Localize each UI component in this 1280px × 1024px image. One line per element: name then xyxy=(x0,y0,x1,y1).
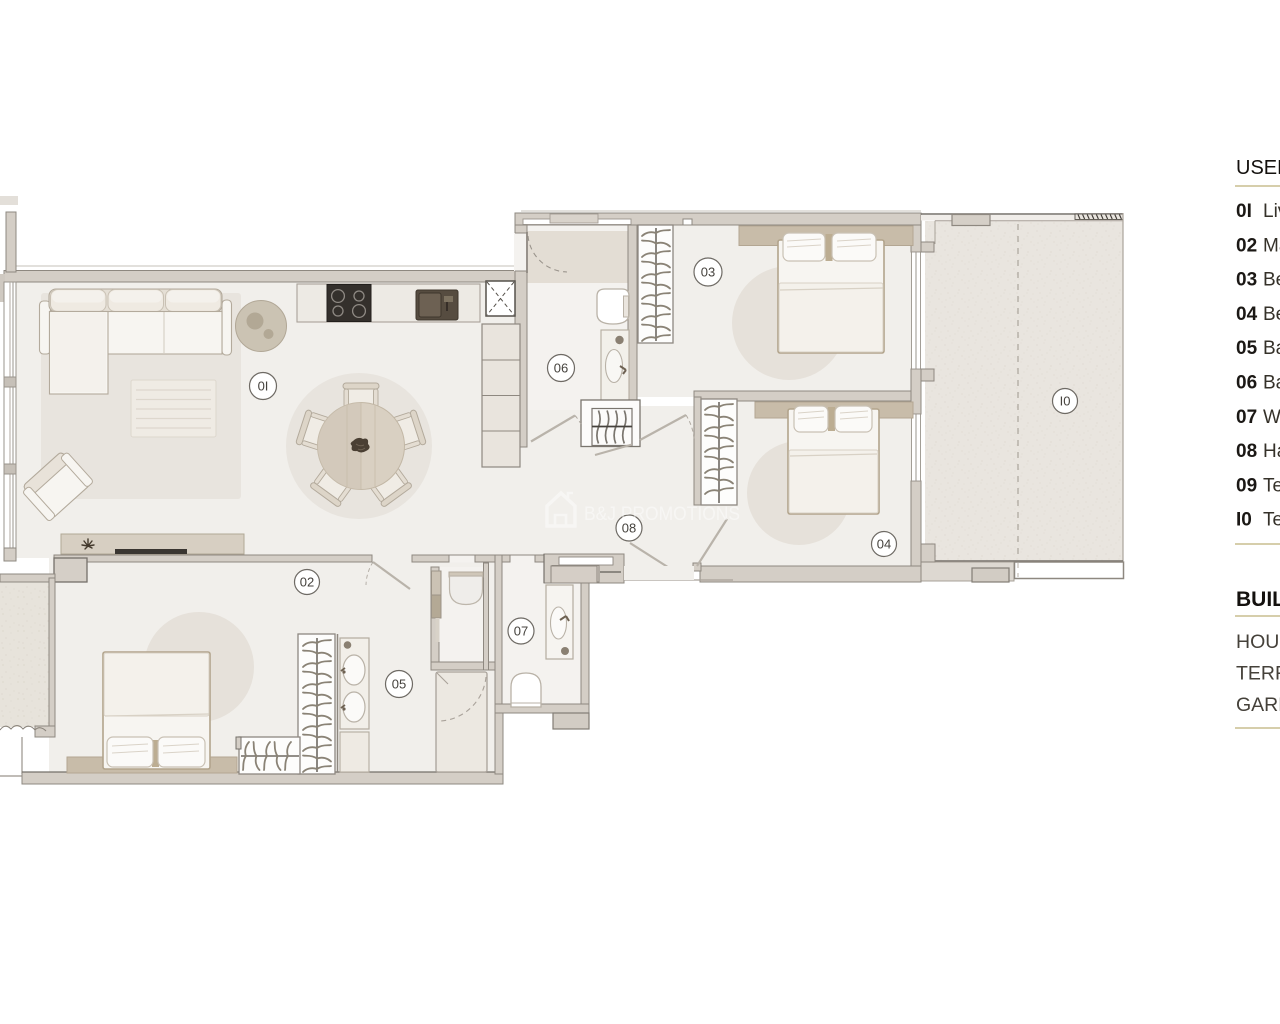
svg-text:06: 06 xyxy=(1236,373,1257,394)
svg-text:09: 09 xyxy=(1236,475,1257,496)
svg-text:03: 03 xyxy=(701,265,715,280)
svg-text:Hall: Hall xyxy=(1263,441,1280,462)
svg-text:04: 04 xyxy=(877,537,891,552)
svg-text:WC: WC xyxy=(1263,407,1280,428)
svg-text:Bedroom 2: Bedroom 2 xyxy=(1263,270,1280,291)
svg-text:06: 06 xyxy=(554,361,568,376)
svg-text:05: 05 xyxy=(1236,338,1258,359)
svg-text:USEFUL SURFACE: USEFUL SURFACE xyxy=(1236,157,1280,179)
svg-text:Bathroom 2: Bathroom 2 xyxy=(1263,373,1280,394)
svg-text:Master bedroom: Master bedroom xyxy=(1263,235,1280,256)
svg-text:I0: I0 xyxy=(1236,510,1252,531)
svg-text:Terrace: Terrace xyxy=(1263,475,1280,496)
svg-text:TERRACE: TERRACE xyxy=(1236,663,1280,685)
svg-text:Living room: Living room xyxy=(1263,201,1280,222)
svg-text:GARDEN: GARDEN xyxy=(1236,694,1280,716)
svg-text:04: 04 xyxy=(1236,304,1258,325)
svg-text:05: 05 xyxy=(392,677,406,692)
svg-text:B&J PROMOTIONS: B&J PROMOTIONS xyxy=(584,504,740,525)
svg-text:I0: I0 xyxy=(1060,394,1071,409)
svg-text:02: 02 xyxy=(300,575,314,590)
svg-text:08: 08 xyxy=(1236,441,1257,462)
svg-text:0I: 0I xyxy=(1236,201,1252,222)
svg-text:0I: 0I xyxy=(258,379,269,394)
svg-text:Terrace: Terrace xyxy=(1263,510,1280,531)
svg-text:BUILT SURFACE: BUILT SURFACE xyxy=(1236,588,1280,611)
svg-text:Bedroom 3: Bedroom 3 xyxy=(1263,304,1280,325)
svg-text:02: 02 xyxy=(1236,235,1257,256)
svg-text:HOUSE: HOUSE xyxy=(1236,631,1280,653)
svg-text:07: 07 xyxy=(1236,407,1257,428)
svg-text:03: 03 xyxy=(1236,270,1257,291)
svg-text:07: 07 xyxy=(514,624,528,639)
svg-text:Bathroom I: Bathroom I xyxy=(1263,338,1280,359)
